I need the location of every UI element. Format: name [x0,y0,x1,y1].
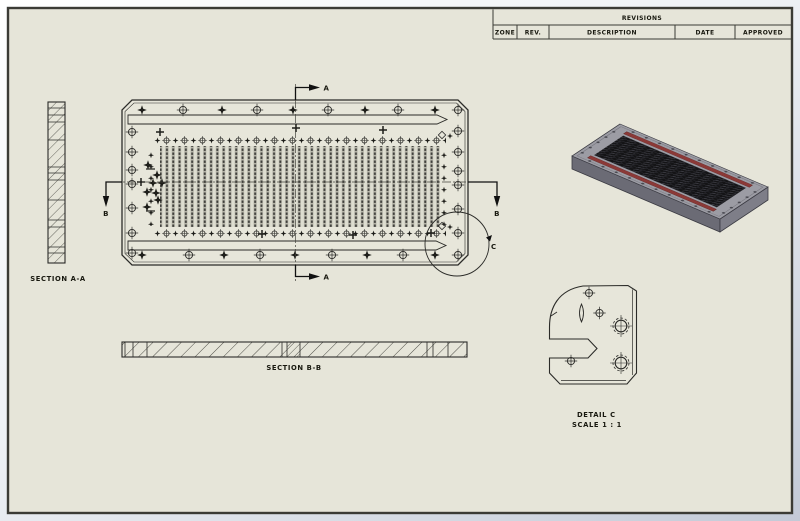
revisions-col-date: DATE [696,30,715,37]
revisions-col-rev: REV. [525,30,541,37]
section-label-a-top: A [324,85,330,93]
revisions-col-approved: APPROVED [743,30,783,37]
revisions-title: REVISIONS [622,15,662,22]
section-label-a-bottom: A [324,274,330,282]
view-main-plate[interactable]: A A B B C [103,84,500,282]
detail-c-label: DETAIL C [577,411,616,419]
section-bb-label: SECTION B-B [266,364,321,372]
cad-drawing-viewport: REVISIONS ZONE REV. DESCRIPTION DATE APP… [0,0,800,521]
plate-well-grid [160,146,440,227]
section-aa-label: SECTION A-A [30,275,86,283]
detail-c-callout-label: C [491,243,497,251]
revisions-col-description: DESCRIPTION [587,30,637,37]
detail-c-outline [550,286,637,385]
detail-c-scale-label: SCALE 1 : 1 [572,421,622,429]
grid-bottom-hole-row [154,227,446,240]
grid-top-hole-row [154,134,446,147]
section-label-b-left: B [103,210,109,218]
section-label-b-right: B [494,210,500,218]
grid-left-hole-col [145,148,157,226]
drawing-sheet-canvas: REVISIONS ZONE REV. DESCRIPTION DATE APP… [0,0,800,521]
revisions-col-zone: ZONE [495,30,515,37]
